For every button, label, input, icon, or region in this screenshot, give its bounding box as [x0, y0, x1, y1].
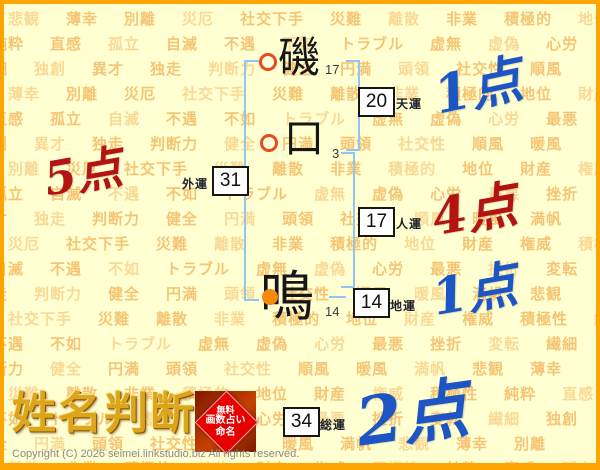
- person-luck-bracket: [341, 152, 355, 288]
- total-luck-value-box: 34: [283, 407, 320, 437]
- outer-luck-value-box: 31: [212, 166, 249, 196]
- outer-luck-label: 外運: [182, 175, 208, 192]
- heaven-luck-value-box: 20: [358, 87, 395, 117]
- outer-luck-points: 5点: [41, 144, 126, 203]
- earth-luck-value-box: 14: [353, 288, 390, 318]
- page-frame: 悲観薄幸別離災厄社交下手災難離散非業積極的地位純粋直感孤立自滅不遇不如トラブル虚…: [0, 0, 600, 470]
- earth-luck-points: 1点: [428, 259, 520, 323]
- stroke-count-1: 17: [325, 62, 339, 77]
- site-logo[interactable]: 姓名判断: [12, 392, 196, 436]
- badge-text-line1: 無料: [216, 405, 234, 415]
- person-luck-label: 人運: [396, 215, 422, 232]
- free-service-badge: 無料 画数占い 命名: [195, 391, 256, 452]
- heaven-luck-points: 1点: [430, 53, 527, 122]
- char-marker-dot-3: [262, 289, 278, 305]
- earth-luck-connector: [329, 296, 346, 298]
- kanji-surname-1: 磯: [278, 37, 320, 79]
- badge-text-line2: 画数占い: [206, 415, 246, 427]
- person-luck-points: 4点: [428, 179, 520, 243]
- char-marker-ring-2: [260, 134, 278, 152]
- person-luck-value-box: 17: [358, 207, 395, 237]
- total-luck-points: 2点: [352, 375, 472, 456]
- earth-luck-label: 地運: [390, 297, 416, 314]
- copyright-text: Copyright (C) 2026 seimei.linkstudio.biz…: [12, 448, 299, 460]
- char-marker-ring-1: [259, 53, 277, 71]
- heaven-luck-label: 天運: [396, 95, 422, 112]
- stroke-count-3: 14: [325, 304, 339, 319]
- kanji-surname-2: 口: [284, 119, 324, 159]
- total-luck-label: 総運: [320, 416, 346, 433]
- stroke-count-2: 3: [332, 146, 339, 161]
- badge-text-line3: 命名: [216, 427, 236, 439]
